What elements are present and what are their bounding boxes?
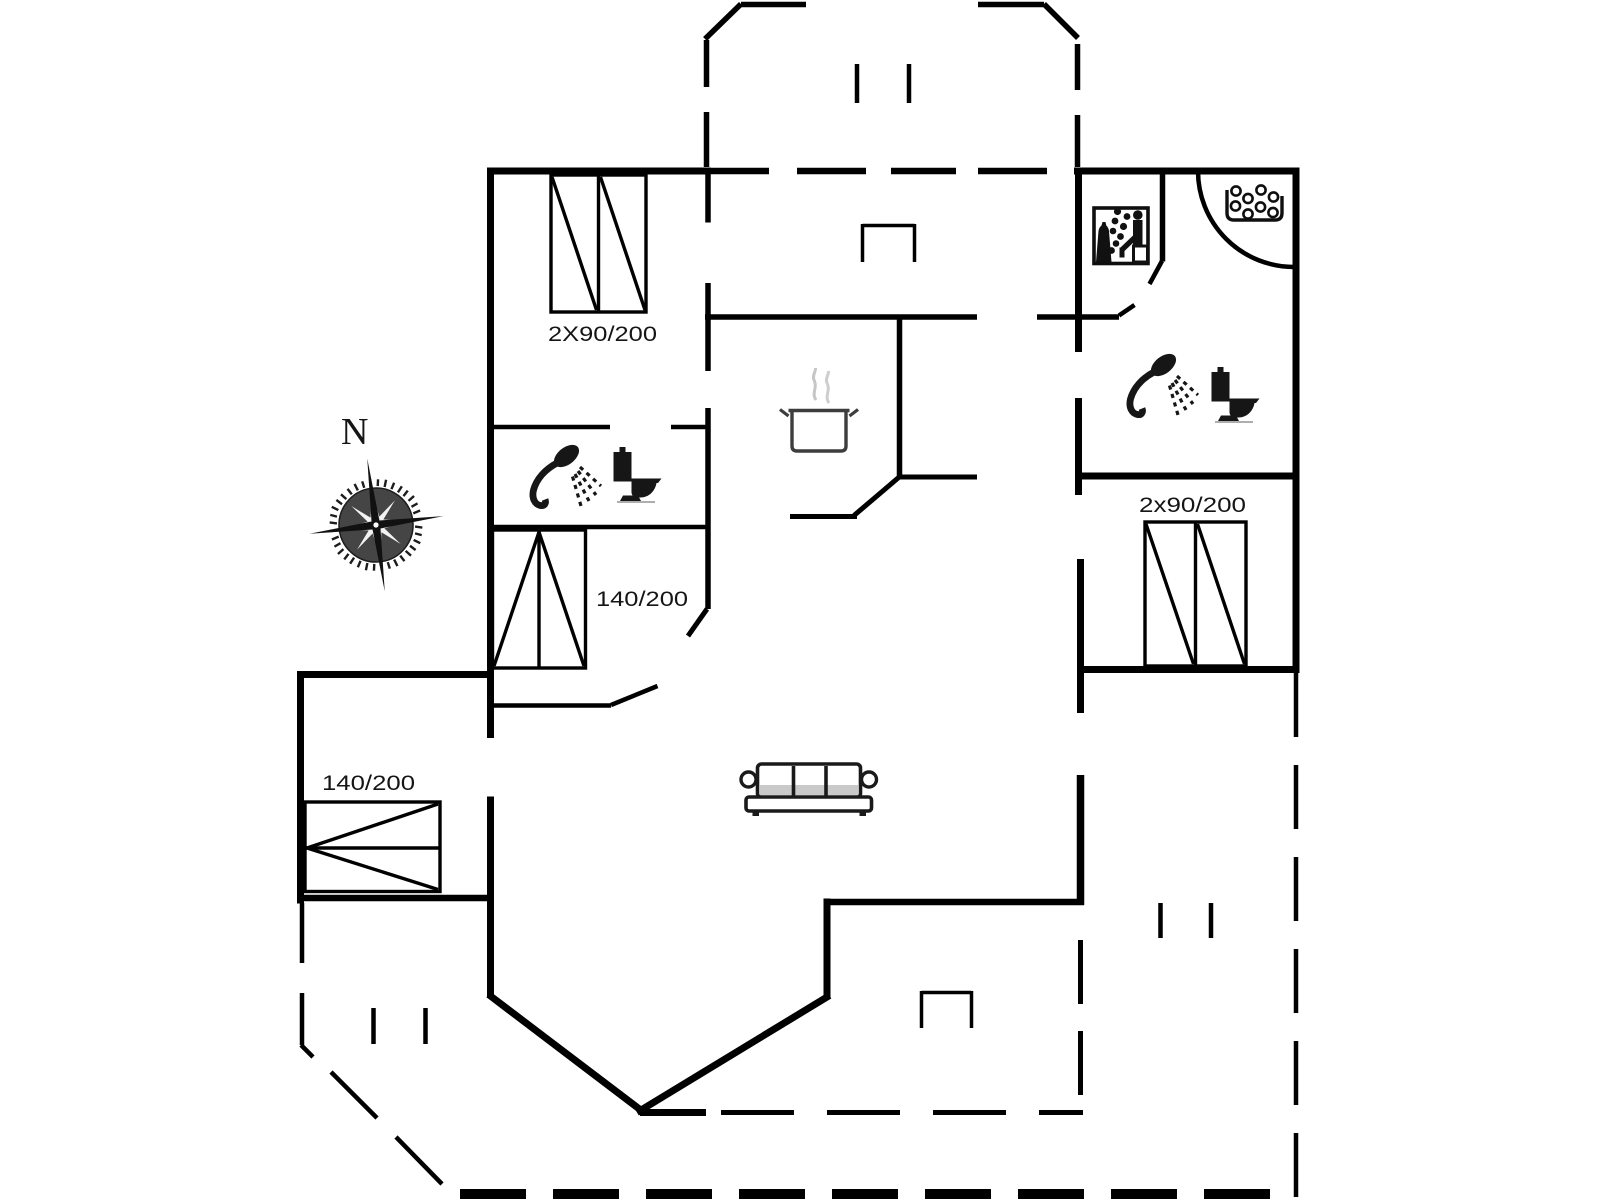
svg-text:140/200: 140/200: [596, 587, 688, 611]
svg-text:140/200: 140/200: [322, 771, 415, 795]
svg-text:N: N: [341, 411, 368, 453]
svg-text:2X90/200: 2X90/200: [548, 322, 657, 346]
svg-text:2x90/200: 2x90/200: [1139, 493, 1246, 517]
